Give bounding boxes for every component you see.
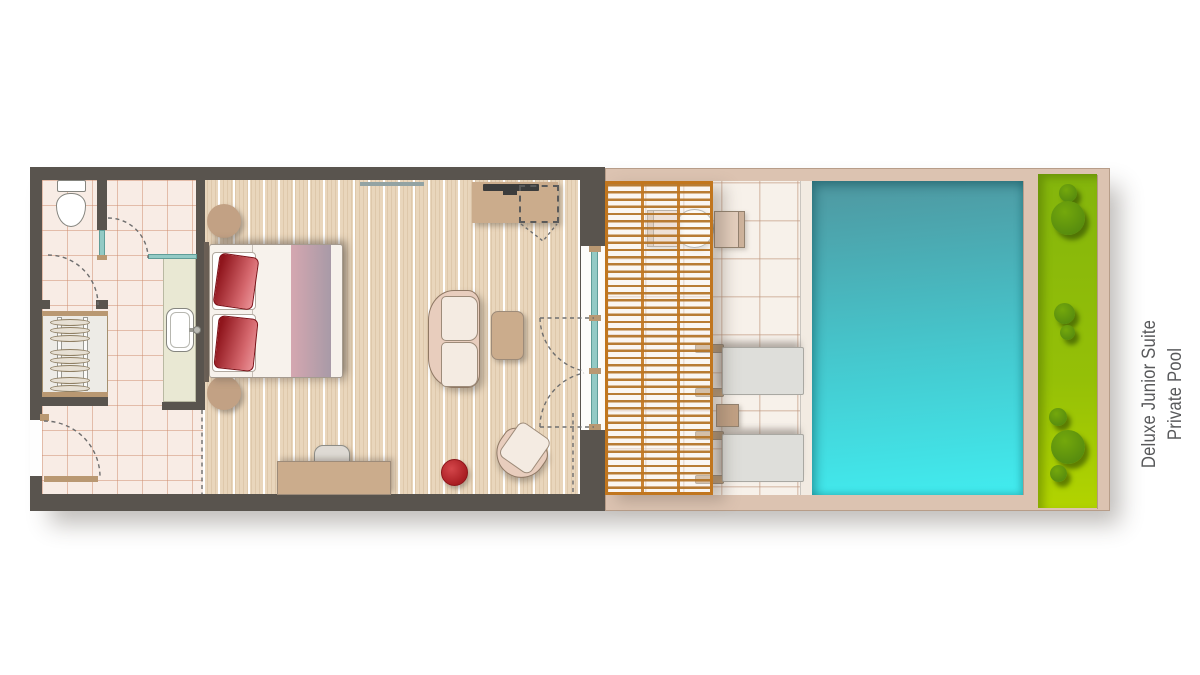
wc-stub-wall-left bbox=[42, 300, 50, 309]
sofa-cushion bbox=[441, 296, 478, 341]
sliding-glass-door bbox=[591, 250, 598, 426]
nightstand bbox=[207, 204, 241, 238]
hanger-icon bbox=[50, 357, 90, 364]
entry-door-leaf bbox=[44, 476, 98, 482]
door-mullion bbox=[589, 368, 601, 374]
swimming-pool bbox=[812, 181, 1023, 495]
chair-back bbox=[738, 212, 744, 247]
bed-runner bbox=[291, 245, 331, 377]
closet-bottom-wall bbox=[42, 397, 108, 406]
hanger-icon bbox=[50, 377, 90, 384]
garden-wall-edge bbox=[1097, 175, 1098, 509]
nightstand bbox=[207, 376, 241, 410]
wall-art-above-bed bbox=[360, 182, 424, 186]
entry-door-opening bbox=[30, 420, 42, 476]
outdoor-chair bbox=[714, 211, 745, 248]
tv-stand bbox=[503, 191, 517, 195]
bush-icon bbox=[1051, 430, 1085, 464]
hanger-icon bbox=[50, 327, 90, 334]
pergola bbox=[605, 181, 713, 495]
pergola-beam bbox=[677, 184, 680, 492]
red-cushion bbox=[213, 252, 260, 310]
room-type-label: Deluxe Junior Suite Private Pool bbox=[1137, 297, 1163, 491]
red-pouf bbox=[441, 459, 468, 486]
bush-icon bbox=[1049, 408, 1067, 426]
hanger-icon bbox=[50, 349, 90, 356]
wc-door-jamb bbox=[97, 255, 107, 260]
washbasin-inner-rim bbox=[170, 312, 190, 348]
sofa-cushion bbox=[441, 342, 478, 387]
hanger-icon bbox=[50, 335, 90, 342]
door-mullion bbox=[589, 315, 601, 321]
wardrobe-bottom-rail bbox=[42, 392, 108, 397]
hanger-icon bbox=[50, 319, 90, 326]
bush-icon bbox=[1060, 325, 1075, 340]
side-table bbox=[716, 404, 739, 427]
door-mullion bbox=[589, 424, 601, 430]
vanity-end-wall bbox=[162, 402, 205, 410]
door-mullion bbox=[589, 246, 601, 252]
bush-icon bbox=[1051, 201, 1085, 235]
hanger-icon bbox=[50, 365, 90, 372]
pool-wall-edge bbox=[1023, 181, 1024, 495]
luggage-rack-dashed bbox=[519, 185, 559, 223]
faucet-knob-icon bbox=[193, 326, 201, 334]
wc-partition-wall bbox=[97, 180, 107, 230]
bush-icon bbox=[1054, 303, 1075, 324]
red-cushion bbox=[213, 315, 258, 372]
floor-plan-canvas: Deluxe Junior Suite Private Pool bbox=[0, 0, 1200, 675]
desk bbox=[277, 461, 391, 495]
wardrobe-top-rail bbox=[42, 311, 108, 316]
sun-lounger bbox=[722, 347, 804, 395]
toilet-tank bbox=[57, 180, 86, 192]
entry-threshold bbox=[40, 414, 49, 421]
bathroom-glass-partition bbox=[148, 254, 197, 259]
coffee-table bbox=[491, 311, 524, 360]
hanger-icon bbox=[50, 385, 90, 392]
bush-icon bbox=[1050, 465, 1067, 482]
wc-stub-wall-right bbox=[96, 300, 108, 309]
pergola-beam bbox=[641, 184, 644, 492]
sun-lounger bbox=[722, 434, 804, 482]
bush-icon bbox=[1059, 184, 1077, 202]
